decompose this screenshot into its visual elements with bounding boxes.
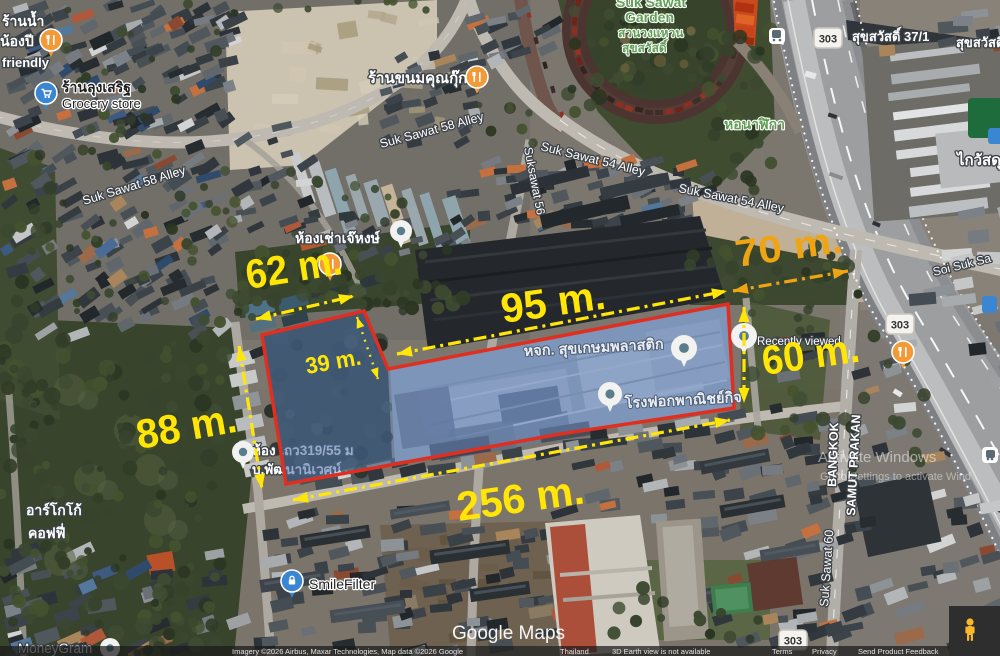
svg-text:ร้านขนมคุณกุ๊ก: ร้านขนมคุณกุ๊ก bbox=[368, 69, 467, 88]
svg-text:หอนาฬิกา: หอนาฬิกา bbox=[724, 116, 785, 132]
svg-text:สุขสวัสดิ: สุขสวัสดิ bbox=[956, 35, 1000, 51]
svg-text:สุขสวัสดิ์: สุขสวัสดิ์ bbox=[622, 39, 668, 56]
svg-text:Go to Settings to activate Win: Go to Settings to activate Wind bbox=[820, 471, 971, 483]
svg-text:Send Product Feedback: Send Product Feedback bbox=[858, 647, 939, 656]
svg-text:คอฟฟี่: คอฟฟี่ bbox=[28, 523, 66, 541]
svg-text:Grocery store: Grocery store bbox=[62, 96, 141, 111]
svg-text:SmileFilter: SmileFilter bbox=[309, 576, 375, 592]
svg-text:Google Maps: Google Maps bbox=[452, 623, 565, 644]
svg-text:Activate Windows: Activate Windows bbox=[818, 449, 936, 466]
svg-text:ร้านน้ำ: ร้านน้ำ bbox=[2, 10, 44, 29]
svg-text:Privacy: Privacy bbox=[812, 647, 837, 656]
svg-text:สุขสวัสดิ์ 37/1: สุขสวัสดิ์ 37/1 bbox=[852, 26, 929, 45]
svg-text:Garden: Garden bbox=[625, 9, 674, 25]
svg-text:303: 303 bbox=[891, 320, 909, 332]
svg-text:3D Earth view is not available: 3D Earth view is not available bbox=[612, 647, 710, 656]
svg-text:ไกวัสดุ: ไกวัสดุ bbox=[955, 150, 1000, 170]
svg-text:303: 303 bbox=[784, 636, 802, 648]
svg-text:Imagery ©2026 Airbus, Maxar Te: Imagery ©2026 Airbus, Maxar Technologies… bbox=[232, 647, 463, 656]
svg-text:friendly: friendly bbox=[2, 55, 50, 70]
svg-text:ร้านลุงเสริฐ: ร้านลุงเสริฐ bbox=[62, 79, 131, 97]
svg-text:อาร์โกโก้: อาร์โกโก้ bbox=[26, 501, 82, 518]
svg-text:303: 303 bbox=[819, 34, 837, 46]
svg-text:Terms: Terms bbox=[772, 647, 793, 656]
svg-text:สวนวงแหวน: สวนวงแหวน bbox=[618, 26, 684, 40]
svg-text:Thailand: Thailand bbox=[560, 647, 589, 656]
svg-text:น้องปี: น้องปี bbox=[0, 33, 34, 49]
